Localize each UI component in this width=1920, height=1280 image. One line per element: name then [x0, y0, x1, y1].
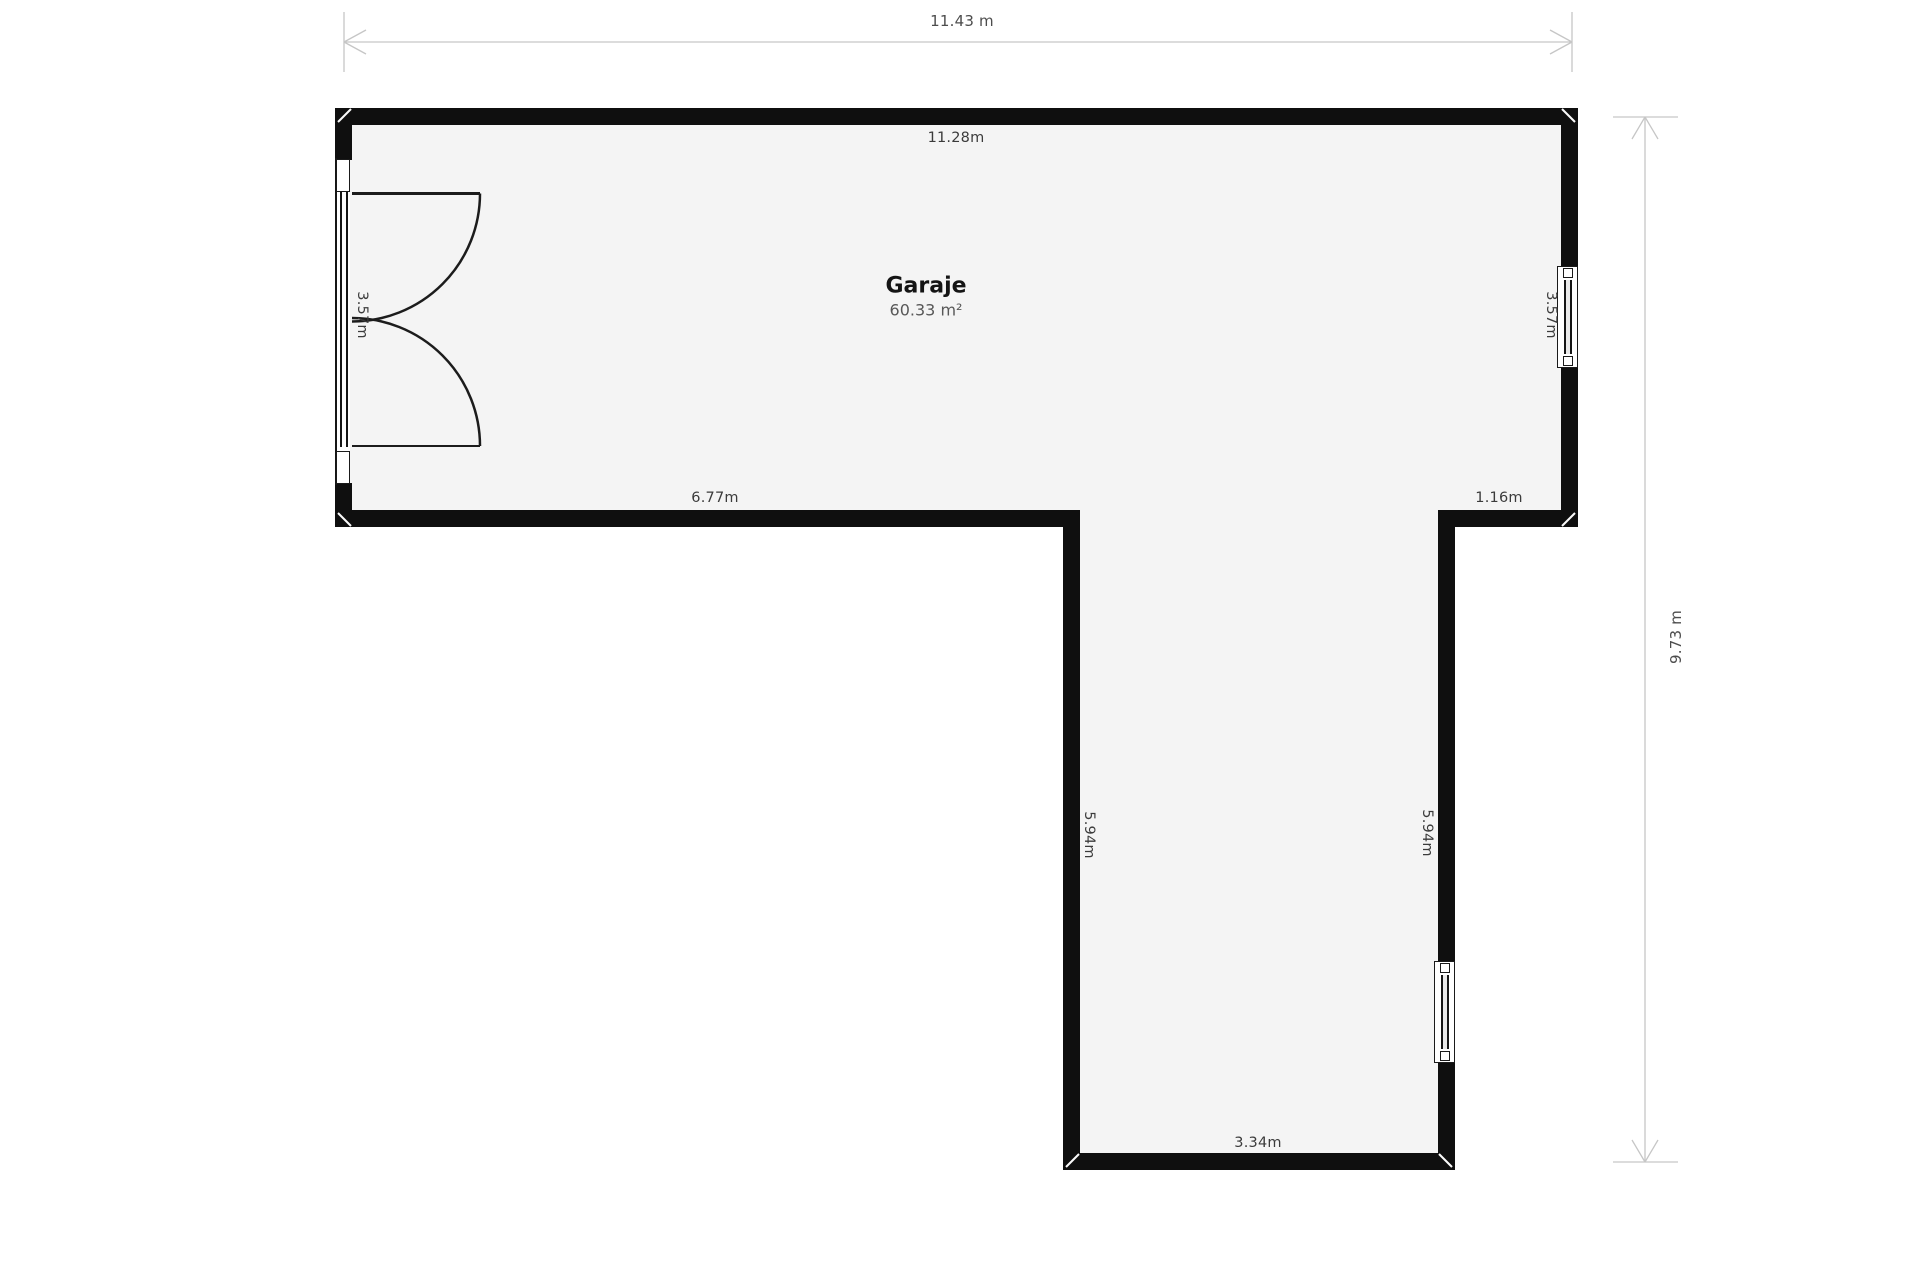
wall-label-left: 3.57m	[354, 291, 370, 338]
floor-plan-canvas: 11.43 m 9.73 m 11.28m 3.57m 3.57m 6.77m …	[0, 0, 1920, 1280]
wall-label-top: 11.28m	[928, 130, 985, 146]
wall-label-bottom-left: 6.77m	[691, 490, 738, 506]
wall-label-stem-right: 5.94m	[1419, 809, 1435, 856]
wall-label-stem-left: 5.94m	[1081, 811, 1097, 858]
wall-label-right: 3.57m	[1543, 291, 1559, 338]
door-swing-arcs	[352, 194, 480, 447]
wall-label-stem-bottom: 3.34m	[1234, 1135, 1281, 1151]
overall-width-label: 11.43 m	[930, 12, 994, 30]
wall-miter-marks	[338, 109, 1575, 1167]
plan-linework	[0, 0, 1920, 1280]
overall-height-label: 9.73 m	[1667, 610, 1685, 664]
room-name: Garaje	[885, 274, 966, 299]
room-area: 60.33 m²	[890, 301, 963, 320]
wall-label-bottom-right: 1.16m	[1475, 490, 1522, 506]
